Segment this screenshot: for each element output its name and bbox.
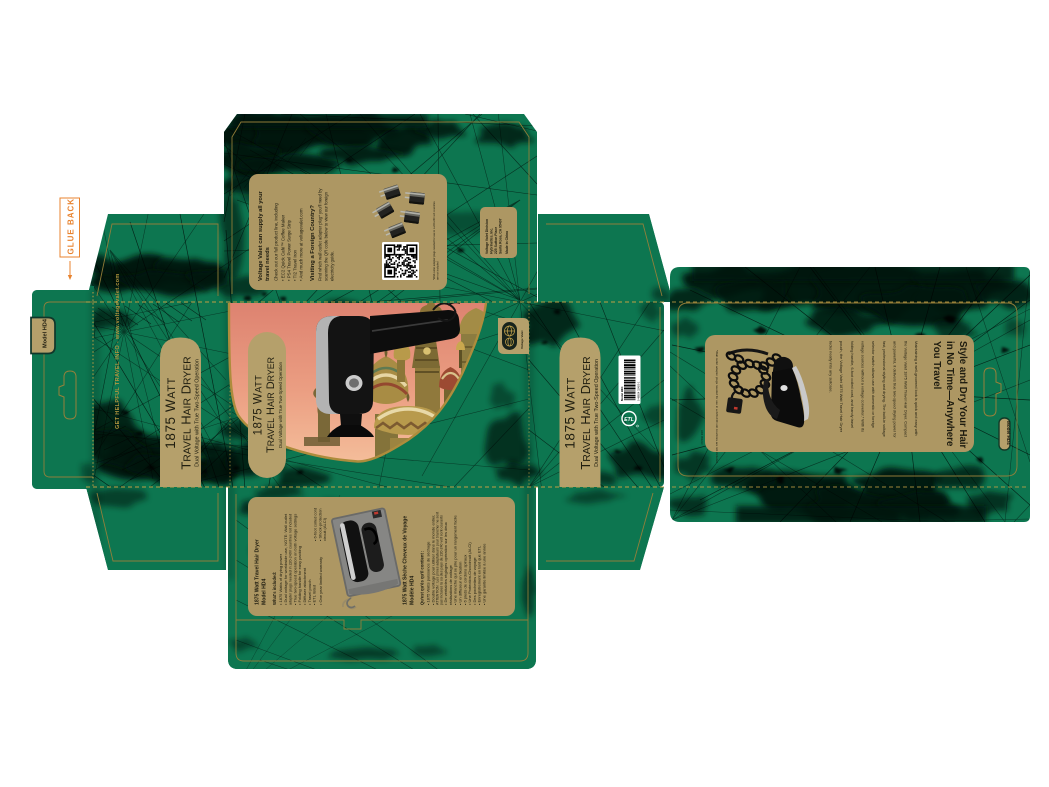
svg-text:travel needs: travel needs	[265, 247, 271, 281]
svg-text:1875 WATT: 1875 WATT	[163, 377, 178, 449]
svg-text:Voltage Valet can supply all: Voltage Valet can supply all your	[258, 190, 264, 281]
svg-text:Voltage Valet: Voltage Valet	[520, 331, 524, 349]
svg-text:folding handle, 6-foot coiled: folding handle, 6-foot coiled cord, and …	[850, 341, 855, 428]
svg-text:TRAVEL HAIR DRYER: TRAVEL HAIR DRYER	[265, 357, 277, 453]
svg-text:• Dual voltage for worldwide u: • Dual voltage for worldwide use, NOTE: …	[283, 513, 288, 605]
svg-text:fast, professional styling and: fast, professional styling and drying. T…	[882, 341, 887, 437]
svg-text:What's included:: What's included:	[272, 572, 277, 605]
svg-text:are not included: are not included	[436, 261, 440, 280]
svg-text:1875 WATT: 1875 WATT	[253, 375, 265, 436]
svg-text:Modèle HD4: Modèle HD4	[410, 576, 416, 605]
svg-text:Dual Voltage with True Two-Spe: Dual Voltage with True Two-Speed Operati…	[594, 359, 600, 467]
svg-text:Voltage Valet Division: Voltage Valet Division	[485, 219, 489, 254]
svg-text:electricity guide.: electricity guide.	[330, 251, 335, 281]
svg-text:You Travel: You Travel	[931, 341, 942, 389]
svg-text:• And much more at voltagevale: • And much more at voltagevalet.com	[299, 208, 304, 281]
svg-text:225 Sutton Place: 225 Sutton Place	[494, 227, 498, 254]
svg-text:voltage sources without a volt: voltage sources without a voltage conver…	[861, 341, 866, 432]
svg-text:Model HD4: Model HD4	[1006, 421, 1011, 445]
svg-text:Dual Voltage with True Two-Spe: Dual Voltage with True Two-Speed Operati…	[278, 361, 283, 448]
svg-text:GET HELPFUL TRAVEL INFO - www.: GET HELPFUL TRAVEL INFO - www.voltageval…	[115, 273, 121, 429]
svg-text:• TI2 Travel Iron: • TI2 Travel Iron	[293, 249, 298, 281]
svg-text:Dual Voltage with True Two-Spe: Dual Voltage with True Two-Speed Operati…	[195, 359, 201, 467]
svg-text:Model HD4: Model HD4	[262, 579, 268, 605]
svg-text:• One year limited warranty: • One year limited warranty	[318, 557, 323, 605]
svg-text:Santa Rosa, CA 95407: Santa Rosa, CA 95407	[499, 218, 503, 254]
svg-text:*Wall outlet adapter plugs nee: *Wall outlet adapter plugs needed for us…	[432, 201, 436, 280]
svg-text:HD4 0912-D: HD4 0912-D	[700, 430, 704, 445]
svg-text:Model HD4: Model HD4	[43, 318, 49, 348]
svg-text:• PS4 Travel Power Surge Strip: • PS4 Travel Power Surge Strip	[287, 219, 292, 281]
svg-text:*Wall outlet adapter plugs nee: *Wall outlet adapter plugs needed for us…	[715, 350, 719, 463]
svg-text:1875 Watt Sèche Cheveux de Voy: 1875 Watt Sèche Cheveux de Voyage	[403, 516, 409, 605]
svg-text:Qu'est qu'ès qu'il contient :: Qu'est qu'ès qu'il contient :	[420, 551, 425, 605]
svg-text:Hybrinetics, Inc.: Hybrinetics, Inc.	[490, 228, 494, 254]
svg-text:Style and Dry Your Hair: Style and Dry Your Hair	[957, 341, 968, 449]
svg-text:the Voltage Valet 1875 Watt T: the Voltage Valet 1875 Watt Travel Hair …	[903, 341, 908, 438]
svg-text:0 48654 32450 1: 0 48654 32450 1	[637, 381, 641, 401]
svg-text:Model HD4: Model HD4	[620, 386, 624, 401]
svg-text:pouch, the Voltage Valet 1875: pouch, the Voltage Valet 1875 Watt Trave…	[839, 341, 844, 433]
svg-text:Visiting a Foreign Country?: Visiting a Foreign Country?	[310, 205, 316, 281]
svg-text:GLUE BACK: GLUE BACK	[66, 198, 75, 255]
svg-text:Find which wall outlet adapter: Find which wall outlet adapter plug* you…	[318, 188, 323, 281]
svg-text:scanning the QR code below to: scanning the QR code below to view our f…	[324, 191, 329, 281]
svg-text:circuit (ALCI): circuit (ALCI)	[322, 517, 327, 541]
svg-text:tucks neatly into any suitcase: tucks neatly into any suitcase.	[828, 341, 833, 393]
svg-text:in No Time—Anywhere: in No Time—Anywhere	[944, 341, 955, 447]
svg-text:selector switch allows use wit: selector switch allows use with domestic…	[871, 341, 876, 428]
svg-text:and powerful, it delivers true: and powerful, it delivers true two-speed…	[893, 341, 898, 438]
svg-text:ETL: ETL	[624, 417, 634, 423]
svg-text:• EC2 Quick Café™ Coffee Maker: • EC2 Quick Café™ Coffee Maker	[281, 214, 286, 281]
svg-text:Maintaining a well-groomed loo: Maintaining a well-groomed look is quick…	[914, 341, 919, 436]
svg-text:• ETL listed: • ETL listed	[312, 585, 317, 605]
svg-text:Made in China: Made in China	[505, 231, 509, 254]
svg-text:1875 Watt Travel Hair Dryer: 1875 Watt Travel Hair Dryer	[255, 539, 261, 605]
svg-text:1875 WATT: 1875 WATT	[563, 377, 578, 449]
svg-text:Check out our full product lin: Check out our full product line, includi…	[274, 203, 279, 281]
svg-text:• Une garantie limitée à une a: • Une garantie limitée à une année	[482, 543, 487, 605]
